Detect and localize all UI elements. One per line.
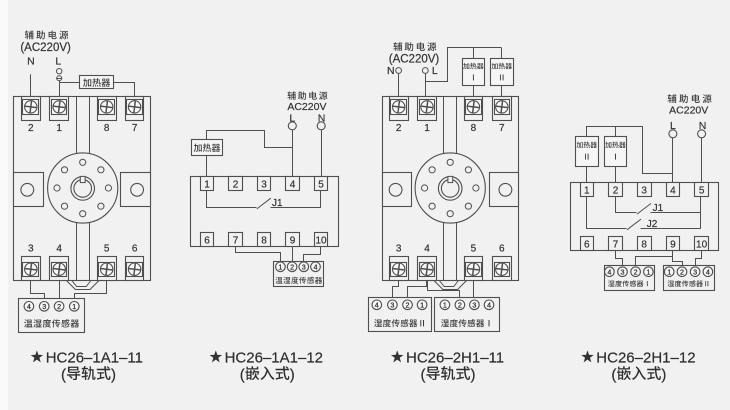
svg-text:5: 5 <box>318 180 324 191</box>
svg-text:(: ( <box>611 367 616 384</box>
svg-text:6: 6 <box>132 244 138 255</box>
svg-text:(: ( <box>61 367 66 384</box>
svg-text:5: 5 <box>699 186 705 197</box>
svg-text:4: 4 <box>607 267 611 276</box>
svg-text:): ) <box>661 367 666 384</box>
svg-text:J2: J2 <box>647 219 658 230</box>
svg-text:J1: J1 <box>653 203 664 214</box>
svg-text:5: 5 <box>471 244 477 255</box>
svg-text:3: 3 <box>621 267 625 276</box>
svg-text:3: 3 <box>396 244 402 255</box>
svg-text:7: 7 <box>233 236 239 247</box>
svg-text:2: 2 <box>613 186 619 197</box>
svg-text:1: 1 <box>424 123 430 134</box>
svg-text:L: L <box>432 65 438 77</box>
svg-text:4: 4 <box>706 267 710 276</box>
svg-text:4: 4 <box>670 186 676 197</box>
svg-text:L: L <box>55 55 61 67</box>
svg-text:8: 8 <box>104 123 110 134</box>
svg-text:2: 2 <box>290 263 294 272</box>
svg-text:): ) <box>290 367 295 384</box>
svg-text:1: 1 <box>584 186 590 197</box>
svg-text:7: 7 <box>499 123 505 134</box>
svg-text:HC26–1A1–11: HC26–1A1–11 <box>46 349 143 366</box>
svg-text:AC220V: AC220V <box>669 105 708 117</box>
svg-text:4: 4 <box>290 180 296 191</box>
svg-text:9: 9 <box>290 236 296 247</box>
svg-text:2: 2 <box>396 123 402 134</box>
svg-text:3: 3 <box>42 302 46 311</box>
svg-text:8: 8 <box>261 236 267 247</box>
svg-text:4: 4 <box>56 244 62 255</box>
svg-text:10: 10 <box>315 236 327 247</box>
svg-text:4: 4 <box>375 301 379 310</box>
svg-text:4: 4 <box>424 244 430 255</box>
svg-text:): ) <box>471 367 476 384</box>
svg-text:6: 6 <box>584 240 590 251</box>
svg-text:4: 4 <box>27 302 31 311</box>
svg-text:4: 4 <box>487 301 491 310</box>
svg-text:2: 2 <box>458 301 462 310</box>
svg-text:6: 6 <box>499 244 505 255</box>
svg-text:2: 2 <box>634 267 638 276</box>
svg-text:3: 3 <box>261 180 267 191</box>
svg-text:AC220V: AC220V <box>287 101 326 113</box>
svg-text:(AC220V): (AC220V) <box>20 42 71 54</box>
svg-text:N: N <box>27 55 35 67</box>
svg-text:): ) <box>111 367 116 384</box>
svg-text:2: 2 <box>28 123 34 134</box>
svg-text:6: 6 <box>204 236 210 247</box>
svg-text:3: 3 <box>28 244 34 255</box>
svg-text:10: 10 <box>696 240 708 251</box>
svg-text:8: 8 <box>471 123 477 134</box>
svg-text:1: 1 <box>204 180 210 191</box>
svg-text:(: ( <box>421 367 426 384</box>
svg-text:5: 5 <box>104 244 110 255</box>
svg-text:3: 3 <box>390 301 394 310</box>
svg-text:2: 2 <box>406 301 410 310</box>
svg-text:J1: J1 <box>272 198 283 209</box>
svg-text:2: 2 <box>57 302 61 311</box>
svg-text:HC26–1A1–12: HC26–1A1–12 <box>225 349 323 366</box>
svg-text:2: 2 <box>233 180 239 191</box>
svg-text:1: 1 <box>443 301 447 310</box>
svg-text:3: 3 <box>693 267 697 276</box>
svg-text:4: 4 <box>314 263 318 272</box>
svg-text:3: 3 <box>641 186 647 197</box>
svg-text:HC26–2H1–12: HC26–2H1–12 <box>596 349 695 366</box>
svg-text:1: 1 <box>72 302 76 311</box>
svg-text:1: 1 <box>56 123 62 134</box>
svg-text:HC26–2H1–11: HC26–2H1–11 <box>406 349 504 366</box>
svg-text:N: N <box>387 65 395 77</box>
svg-text:1: 1 <box>667 267 671 276</box>
svg-text:7: 7 <box>132 123 138 134</box>
svg-text:1: 1 <box>278 263 282 272</box>
svg-text:7: 7 <box>613 240 619 251</box>
svg-text:9: 9 <box>670 240 676 251</box>
svg-text:1: 1 <box>646 267 650 276</box>
svg-text:2: 2 <box>680 267 684 276</box>
svg-text:1: 1 <box>420 301 424 310</box>
svg-text:3: 3 <box>472 301 476 310</box>
svg-text:(: ( <box>240 367 245 384</box>
svg-text:3: 3 <box>302 263 306 272</box>
svg-text:(AC220V): (AC220V) <box>389 53 440 65</box>
svg-text:8: 8 <box>641 240 647 251</box>
